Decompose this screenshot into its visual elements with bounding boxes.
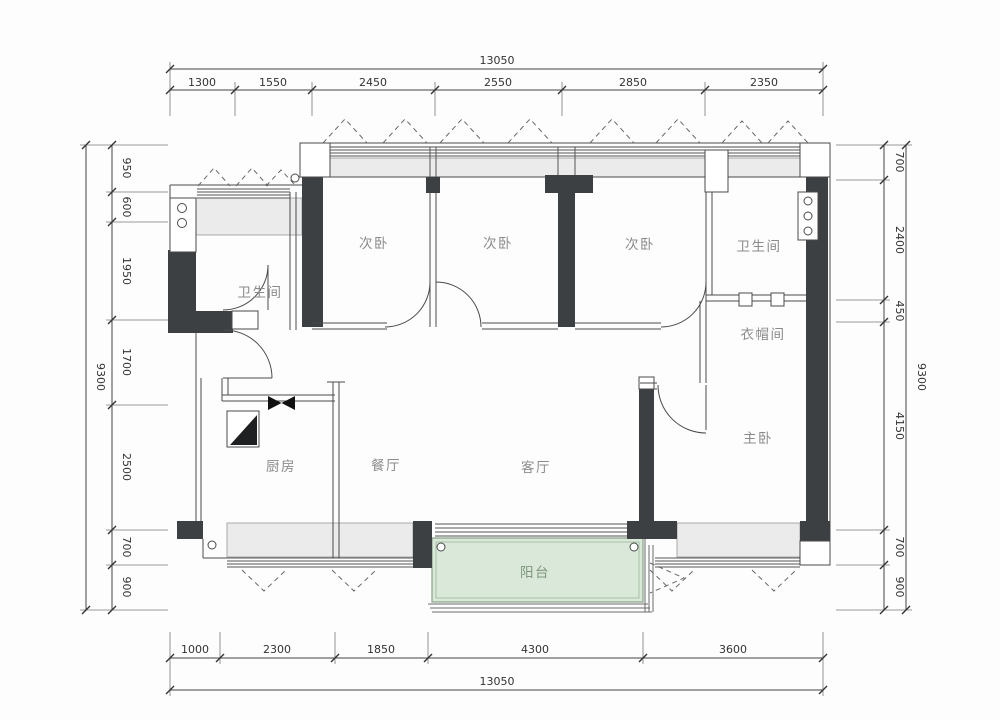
pipe-circle [291,174,299,182]
window-bands [196,158,806,557]
dim-left-seg: 1950 [120,257,133,285]
room-label-bathroom2: 卫生间 [737,239,782,255]
vanity-icon [798,192,818,240]
room-label-bedroom1: 次卧 [359,236,389,252]
drain-circle [437,543,445,551]
flue-bowtie-icon [268,396,295,410]
dim-right-seg: 900 [893,577,906,598]
room-label-cloakroom: 衣帽间 [741,327,786,343]
dim-top-seg: 2550 [484,76,512,89]
dim-bottom-seg: 2300 [263,643,291,656]
floor-plan-page: 13050 1300 1550 2450 2550 2850 2350 1000… [0,0,1000,720]
dim-right-total: 9300 [915,363,928,391]
dim-left-seg: 1700 [120,348,133,376]
dim-left-total: 9300 [94,363,107,391]
dim-bottom-total: 13050 [480,675,515,688]
room-label-kitchen: 厨房 [266,459,296,475]
room-label-bathroom1: 卫生间 [238,285,283,301]
dim-bottom-seg: 4300 [521,643,549,656]
washer-icon [170,198,196,252]
doors [223,265,706,433]
kitchen-sink-icon [227,411,259,447]
room-label-bedroom2: 次卧 [483,236,513,252]
dim-top-seg: 2450 [359,76,387,89]
room-label-bedroom3: 次卧 [625,237,655,253]
room-label-dining: 餐厅 [371,458,401,474]
dim-right-seg: 700 [893,152,906,173]
dim-bottom: 1000 2300 1850 4300 3600 13050 [166,632,827,696]
dim-right-seg: 450 [893,301,906,322]
room-label-living: 客厅 [521,459,551,476]
dim-right: 9300 700 2400 450 4150 700 900 [836,141,928,614]
dim-top-seg: 1300 [188,76,216,89]
pipe-circle [208,541,216,549]
dim-left-seg: 2500 [120,453,133,481]
dim-left-seg: 600 [120,197,133,218]
dim-left-seg: 900 [120,577,133,598]
master-door [658,385,706,433]
entry-door [223,330,272,378]
dim-top-seg: 2350 [750,76,778,89]
dim-left: 9300 950 600 1950 1700 2500 700 900 [80,141,168,614]
room-label-master: 主卧 [743,431,773,447]
dim-right-seg: 4150 [893,412,906,440]
floor-plan-drawing: 13050 1300 1550 2450 2550 2850 2350 1000… [0,0,1000,720]
dim-right-seg: 700 [893,537,906,558]
dim-top-seg: 1550 [259,76,287,89]
dim-bottom-seg: 1850 [367,643,395,656]
dim-bottom-seg: 3600 [719,643,747,656]
bedroom1-door [385,281,430,327]
bedroom3-door [661,282,706,327]
dim-top-total: 13050 [480,54,515,67]
balcony-area [428,538,684,612]
dim-right-seg: 2400 [893,226,906,254]
dim-left-seg: 950 [120,158,133,179]
dim-bottom-seg: 1000 [181,643,209,656]
dim-top: 13050 1300 1550 2450 2550 2850 2350 [166,54,827,116]
dim-left-seg: 700 [120,537,133,558]
room-label-balcony: 阳台 [520,565,550,581]
bedroom2-door [436,282,481,327]
drain-circle [630,543,638,551]
dim-top-seg: 2850 [619,76,647,89]
